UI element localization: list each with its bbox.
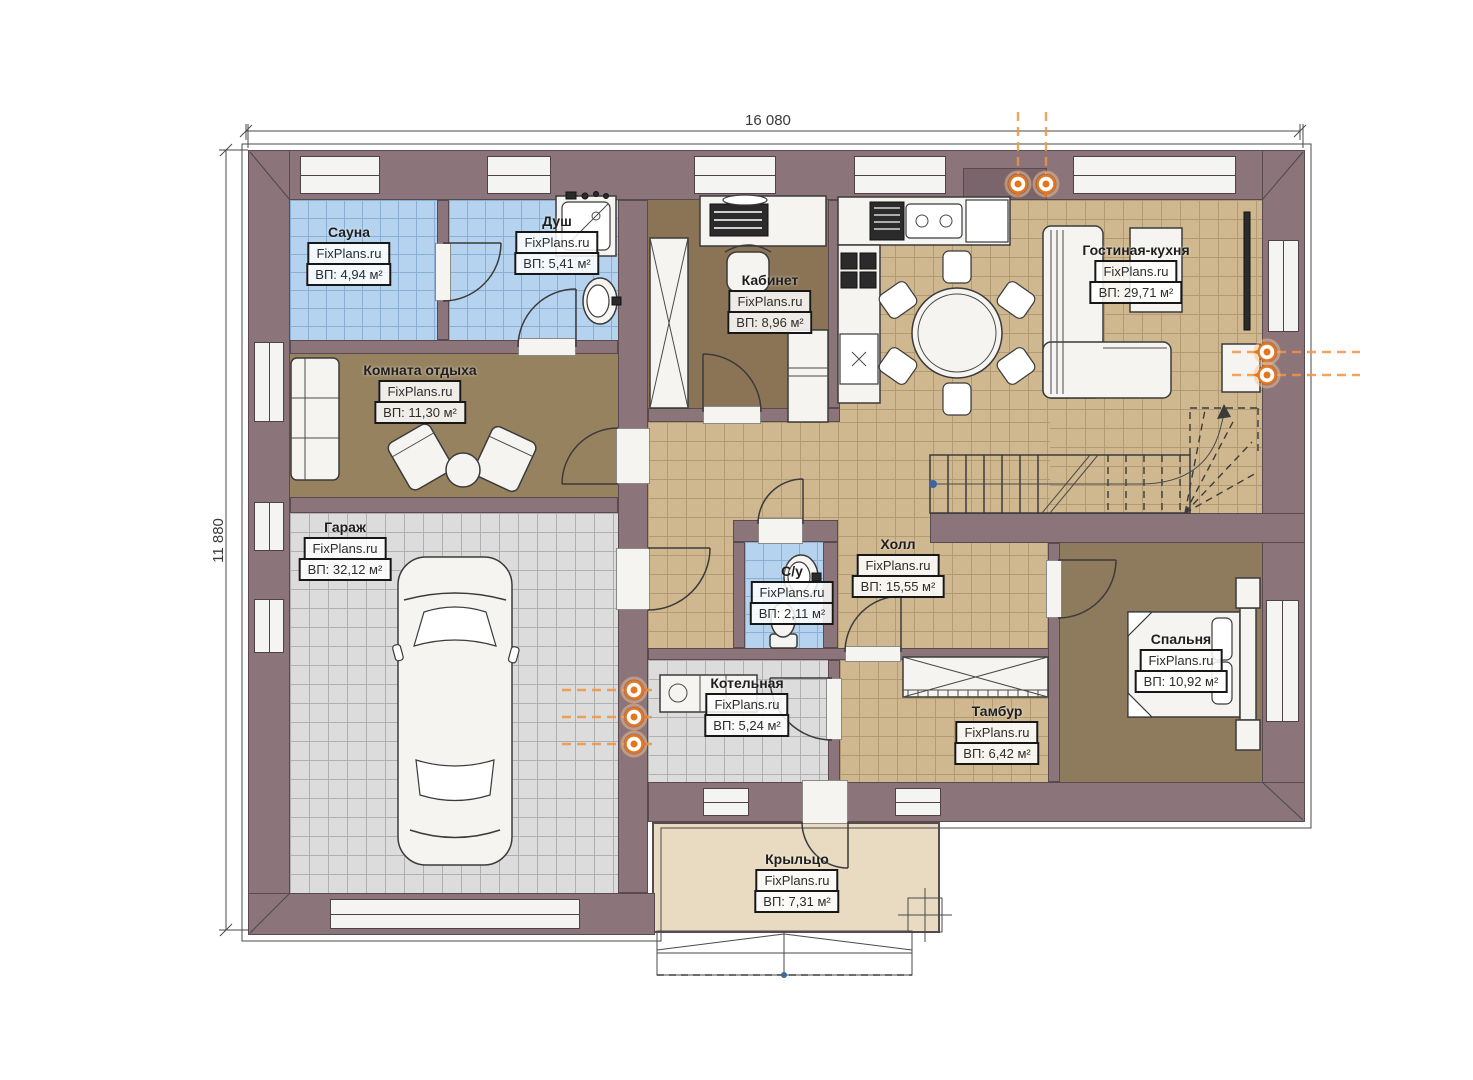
nightstand-top [1236,578,1260,608]
porch-corner-marker [898,888,952,942]
office-wardrobe [650,238,688,408]
room-name-boiler: Котельная [710,675,783,691]
vestibule-wardrobe [903,657,1048,697]
room-area-garage: ВП: 32,12 м² [299,558,392,581]
radiator-riser-icon-right-1 [1253,340,1279,364]
room-watermark-living-kitchen: FixPlans.ru [1094,260,1177,283]
porch-steps [657,931,912,978]
room-name-sauna: Сауна [328,224,370,240]
room-watermark-wc: FixPlans.ru [750,581,833,604]
office-desk [700,195,826,246]
room-name-hall: Холл [880,536,915,552]
radiator-riser-icon-boiler-2 [622,705,648,729]
tv-icon [1244,212,1250,330]
lounge-armchair-2 [472,424,538,493]
lounge-armchair-1 [386,422,455,493]
room-label-hall: Холл FixPlans.ru ВП: 15,55 м² [852,536,945,598]
door-sauna [443,243,501,301]
dining-table-set [877,251,1037,415]
room-area-lounge: ВП: 11,30 м² [374,401,466,424]
room-label-boiler: Котельная FixPlans.ru ВП: 5,24 м² [704,675,789,737]
room-area-vestibule: ВП: 6,42 м² [954,742,1039,765]
room-name-shower: Душ [542,213,572,229]
room-watermark-hall: FixPlans.ru [856,554,939,577]
room-area-office: ВП: 8,96 м² [727,311,812,334]
room-name-living-kitchen: Гостиная-кухня [1082,242,1189,258]
door-lounge [562,428,618,484]
room-name-wc: С/у [781,563,803,579]
car-top-view [392,557,520,865]
door-bedroom [1058,560,1116,618]
room-name-garage: Гараж [324,519,366,535]
room-name-vestibule: Тамбур [972,703,1023,719]
room-watermark-sauna: FixPlans.ru [307,242,390,265]
radiator-riser-icon-boiler-3 [622,732,648,756]
room-label-vestibule: Тамбур FixPlans.ru ВП: 6,42 м² [954,703,1039,765]
door-vestibule [845,596,901,652]
stairs [929,404,1258,513]
room-name-porch: Крыльцо [765,851,829,867]
kitchen-counter-top [838,197,1010,245]
nightstand-bottom [1236,720,1260,750]
room-name-lounge: Комната отдыха [363,362,476,378]
radiator-riser-icon-top-2 [1034,172,1058,198]
room-label-sauna: Сауна FixPlans.ru ВП: 4,94 м² [306,224,391,286]
lounge-sofa [291,358,339,480]
room-watermark-lounge: FixPlans.ru [378,380,461,403]
floor-plan-canvas: 16 080 11 880 Сауна FixPlans.ru ВП: 4,94… [0,0,1473,1080]
room-watermark-boiler: FixPlans.ru [705,693,788,716]
door-garage-hall [648,548,710,610]
room-area-living-kitchen: ВП: 29,71 м² [1090,281,1183,304]
room-label-bedroom: Спальня FixPlans.ru ВП: 10,92 м² [1135,631,1228,693]
room-watermark-shower: FixPlans.ru [515,231,598,254]
dimension-width-label: 16 080 [745,112,791,129]
room-label-wc: С/у FixPlans.ru ВП: 2,11 м² [750,563,834,625]
radiator-riser-icon-right-2 [1253,363,1279,387]
room-watermark-bedroom: FixPlans.ru [1139,649,1222,672]
room-area-boiler: ВП: 5,24 м² [704,714,789,737]
room-area-wc: ВП: 2,11 м² [750,602,834,625]
office-shelf [788,330,828,422]
room-area-bedroom: ВП: 10,92 м² [1135,670,1228,693]
room-area-shower: ВП: 5,41 м² [514,252,599,275]
room-label-garage: Гараж FixPlans.ru ВП: 32,12 м² [299,519,392,581]
stairs-start-dot [929,480,937,488]
room-name-office: Кабинет [742,272,799,288]
room-label-porch: Крыльцо FixPlans.ru ВП: 7,31 м² [754,851,839,913]
heating-line-top [1018,112,1046,174]
door-shower [518,289,576,347]
room-watermark-porch: FixPlans.ru [755,869,838,892]
room-label-living-kitchen: Гостиная-кухня FixPlans.ru ВП: 29,71 м² [1082,242,1189,304]
room-watermark-office: FixPlans.ru [728,290,811,313]
room-label-office: Кабинет FixPlans.ru ВП: 8,96 м² [727,272,812,334]
room-label-lounge: Комната отдыха FixPlans.ru ВП: 11,30 м² [363,362,476,424]
door-wc [758,479,803,524]
room-area-sauna: ВП: 4,94 м² [306,263,391,286]
room-watermark-garage: FixPlans.ru [303,537,386,560]
door-office [703,354,761,412]
room-watermark-vestibule: FixPlans.ru [955,721,1038,744]
lounge-coffee-table [446,453,480,487]
shower-sink [583,278,621,324]
room-area-hall: ВП: 15,55 м² [852,575,945,598]
kitchen-counter-left [838,245,880,403]
radiator-riser-icon-top-1 [1006,172,1030,198]
room-name-bedroom: Спальня [1151,631,1211,647]
room-label-shower: Душ FixPlans.ru ВП: 5,41 м² [514,213,599,275]
dimension-height-label: 11 880 [210,518,227,563]
radiator-riser-icon-boiler-1 [622,678,648,702]
room-area-porch: ВП: 7,31 м² [754,890,839,913]
